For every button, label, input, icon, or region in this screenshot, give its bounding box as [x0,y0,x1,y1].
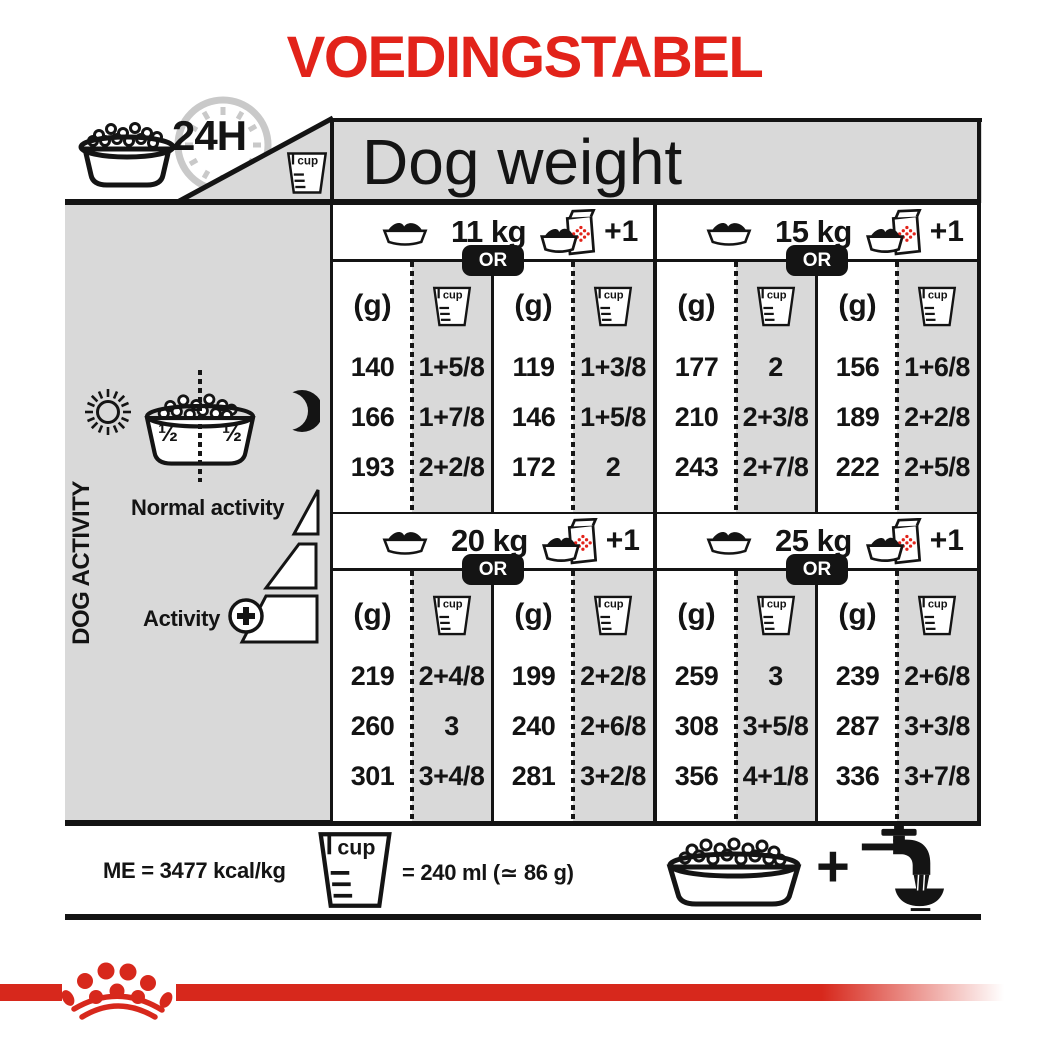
grams-header: (g) [838,270,876,342]
cup-column: cup 1+6/8 2+2/8 2+5/8 [897,262,977,512]
dotted-divider [734,262,738,512]
bowl-plus-pack-icon [866,518,926,566]
brand-stripe-right [176,984,1004,1001]
plus-one-label: +1 [930,524,964,558]
svg-text:cup: cup [928,289,948,301]
food-bowl-icon [652,832,817,910]
grams-column: (g) 156 189 222 [818,262,897,512]
svg-text:cup: cup [604,289,624,301]
cup-value: 2+5/8 [904,442,970,492]
cup-icon: cup [917,284,957,329]
plus-one-label: +1 [606,524,640,558]
grams-value: 193 [351,442,395,492]
cup-value: 2+3/8 [743,392,809,442]
or-badge: OR [786,245,848,276]
svg-text:cup: cup [766,289,786,301]
grams-value: 166 [351,392,395,442]
grams-header: (g) [514,579,552,651]
column-divider [491,262,494,512]
feeding-table-panel: VOEDINGSTABEL 24H Dog weight [0,0,1049,1049]
svg-text:cup: cup [928,598,948,610]
grams-column: (g) 199 240 281 [494,571,573,821]
grams-value: 119 [512,342,554,392]
grams-header: (g) [353,579,391,651]
activity-plus-icon [226,596,266,636]
grams-value: 172 [512,442,556,492]
weight-block-15kg: 15 kg +1 OR cup [657,205,977,512]
svg-text:cup: cup [604,598,624,610]
or-badge: OR [786,554,848,585]
dotted-divider [895,571,899,821]
grams-column: (g) 219 260 301 [333,571,412,821]
cup-value: 3+3/8 [904,701,970,751]
bowl-icon [705,219,753,246]
grams-header: (g) [838,579,876,651]
activity-level-1-icon [291,487,321,537]
brand-stripe-left [0,984,62,1001]
cup-icon: cup [593,593,633,638]
weight-block-data: cup 1+5/8 1+7/8 2+2/8 cup 1+3 [333,262,653,512]
cup-value: 2+2/8 [419,442,485,492]
or-badge: OR [462,245,524,276]
dotted-divider [734,571,738,821]
water-tap-icon [854,824,944,912]
cup-icon: cup [917,593,957,638]
grams-value: 146 [512,392,556,442]
dog-weight-band: Dog weight [330,118,982,203]
grams-value: 281 [512,751,556,801]
weight-block-header: 11 kg +1 OR [333,205,653,262]
grams-value: 177 [675,342,719,392]
plus-one-label: +1 [604,215,638,249]
plus-sign: + [816,838,850,896]
cup-value: 3 [768,651,783,701]
cup-value: 3+4/8 [419,751,485,801]
royal-canin-crown-logo [56,954,184,1022]
cup-value: 2 [606,442,621,492]
grams-value: 356 [675,751,719,801]
cup-column: cup 2+6/8 3+3/8 3+7/8 [897,571,977,821]
sun-icon [82,386,134,438]
grams-column: (g) 239 287 336 [818,571,897,821]
cup-value: 3+5/8 [743,701,809,751]
cup-column: cup 2 2+3/8 2+7/8 [736,262,815,512]
grams-value: 301 [351,751,395,801]
cup-value: 1+3/8 [580,342,646,392]
cup-icon: cup [316,830,394,910]
cup-column: cup 1+5/8 1+7/8 2+2/8 [412,262,491,512]
column-divider [815,571,818,821]
weight-block-header: 15 kg +1 OR [657,205,977,262]
svg-text:cup: cup [337,835,375,859]
bowl-icon [705,528,753,555]
weight-block-data: cup 2 2+3/8 2+7/8 cup 1+6/8 [657,262,977,512]
grams-header: (g) [353,270,391,342]
grams-value: 259 [675,651,719,701]
grams-header: (g) [677,270,715,342]
weight-block-header: 20 kg +1 OR [333,514,653,571]
bowl-plus-pack-icon [540,209,600,257]
half-portion-right: ½ [212,420,252,448]
dotted-divider [895,262,899,512]
grams-value: 240 [512,701,556,751]
svg-text:cup: cup [766,598,786,610]
plus-one-label: +1 [930,215,964,249]
moon-icon [280,388,320,434]
grams-value: 239 [836,651,880,701]
table-border-right [977,118,981,821]
cup-icon: cup [286,149,328,197]
cup-column: cup 1+3/8 1+5/8 2 [573,262,653,512]
svg-text:cup: cup [297,154,318,167]
grams-value: 140 [351,342,395,392]
day-night-split-line [198,370,202,482]
cup-value: 3+7/8 [904,751,970,801]
cup-value: 2+2/8 [904,392,970,442]
column-divider [815,262,818,512]
grams-header: (g) [514,270,552,342]
cup-value: 1+5/8 [419,342,485,392]
normal-activity-label: Normal activity [131,495,284,521]
dog-weight-label: Dog weight [362,122,682,203]
footer-border-bottom [65,914,981,920]
bowl-icon [381,528,429,555]
metabolizable-energy-label: ME = 3477 kcal/kg [103,858,286,884]
cup-value: 4+1/8 [743,751,809,801]
grams-column: (g) 140 166 193 [333,262,412,512]
weight-block-data: cup 3 3+5/8 4+1/8 cup 2+6/8 [657,571,977,821]
cup-icon: cup [432,593,472,638]
cup-icon: cup [756,593,796,638]
grams-value: 156 [836,342,880,392]
bowl-icon [381,219,429,246]
cup-value: 1+6/8 [904,342,970,392]
dotted-divider [410,571,414,821]
svg-text:cup: cup [442,289,462,301]
cup-value: 2+6/8 [904,651,970,701]
grams-value: 222 [836,442,880,492]
grams-column: (g) 119 146 172 [494,262,573,512]
cup-column: cup 3 3+5/8 4+1/8 [736,571,815,821]
cup-value: 3+2/8 [580,751,646,801]
cup-value: 2+2/8 [580,651,646,701]
weight-block-data: cup 2+4/8 3 3+4/8 cup 2+2/8 [333,571,653,821]
grams-value: 219 [351,651,395,701]
grams-value: 199 [512,651,556,701]
dotted-divider [571,262,575,512]
cup-value: 1+5/8 [580,392,646,442]
bowl-plus-pack-icon [866,209,926,257]
cup-value: 2 [768,342,783,392]
grams-column: (g) 177 210 243 [657,262,736,512]
cup-column: cup 2+4/8 3 3+4/8 [412,571,491,821]
dog-activity-label: DOG ACTIVITY [68,478,100,648]
cup-icon: cup [432,284,472,329]
bowl-plus-pack-icon [542,518,602,566]
weight-block-11kg: 11 kg +1 OR cup [333,205,653,512]
grams-value: 308 [675,701,719,751]
cup-value: 1+7/8 [419,392,485,442]
weight-block-20kg: 20 kg +1 OR cup [333,514,653,821]
grams-value: 243 [675,442,719,492]
dotted-divider [571,571,575,821]
grams-value: 260 [351,701,395,751]
grams-value: 287 [836,701,880,751]
cup-column: cup 2+2/8 2+6/8 3+2/8 [573,571,653,821]
cup-equivalence-label: = 240 ml (≃ 86 g) [402,860,574,886]
grams-value: 210 [675,392,719,442]
cup-value: 2+4/8 [419,651,485,701]
cup-value: 3 [444,701,459,751]
column-divider [491,571,494,821]
grams-header: (g) [677,579,715,651]
or-badge: OR [462,554,524,585]
page-title: VOEDINGSTABEL [0,24,1049,91]
cup-value: 2+6/8 [580,701,646,751]
activity-label: Activity [143,606,220,632]
grams-value: 336 [836,751,880,801]
cup-icon: cup [756,284,796,329]
weight-block-25kg: 25 kg +1 OR cup [657,514,977,821]
cup-value: 2+7/8 [743,442,809,492]
svg-text:cup: cup [442,598,462,610]
dotted-divider [410,262,414,512]
grams-value: 189 [836,392,880,442]
cup-icon: cup [593,284,633,329]
weight-block-header: 25 kg +1 OR [657,514,977,571]
grams-column: (g) 259 308 356 [657,571,736,821]
activity-level-2-icon [263,541,319,591]
half-portion-left: ½ [148,420,188,448]
